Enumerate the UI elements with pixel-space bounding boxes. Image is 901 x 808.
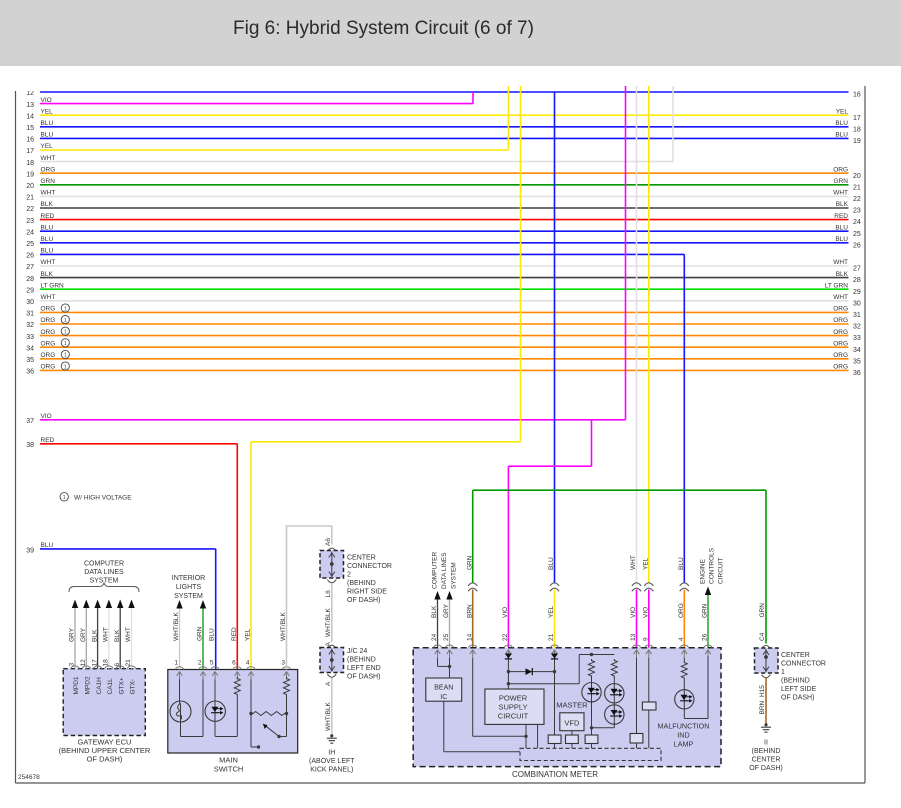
svg-text:30: 30	[853, 300, 861, 307]
svg-text:1: 1	[63, 495, 66, 501]
svg-text:CA1H: CA1H	[96, 677, 103, 695]
svg-text:SYSTEM: SYSTEM	[450, 562, 457, 589]
svg-text:20: 20	[26, 183, 34, 190]
svg-text:WHT: WHT	[41, 259, 56, 266]
svg-text:19: 19	[26, 171, 34, 178]
svg-text:MAIN: MAIN	[219, 756, 238, 765]
svg-text:GRY: GRY	[69, 627, 76, 642]
svg-text:ORG: ORG	[833, 329, 848, 336]
svg-text:GRY: GRY	[443, 603, 450, 618]
svg-text:12: 12	[80, 659, 87, 667]
svg-text:LT GRN: LT GRN	[41, 282, 65, 289]
svg-text:OF DASH): OF DASH)	[347, 674, 380, 681]
svg-text:22: 22	[502, 633, 509, 641]
svg-text:1: 1	[64, 318, 67, 324]
svg-text:(BEHIND: (BEHIND	[347, 580, 376, 587]
svg-text:36: 36	[853, 370, 861, 377]
svg-text:18: 18	[853, 126, 861, 133]
svg-text:(BEHIND: (BEHIND	[347, 657, 376, 664]
svg-text:CENTER: CENTER	[752, 757, 781, 764]
svg-text:BLU: BLU	[835, 120, 848, 127]
svg-text:3: 3	[281, 660, 285, 667]
svg-text:ORG: ORG	[833, 166, 848, 173]
svg-text:26: 26	[26, 253, 34, 260]
svg-text:DATA LINES: DATA LINES	[84, 569, 124, 576]
svg-text:1: 1	[174, 660, 178, 667]
svg-text:LIGHTS: LIGHTS	[176, 584, 202, 591]
svg-text:WHT/BLK: WHT/BLK	[173, 611, 180, 641]
svg-text:VIO: VIO	[643, 607, 650, 618]
svg-text:25: 25	[26, 241, 34, 248]
svg-text:ORG: ORG	[41, 340, 56, 347]
svg-text:POWER: POWER	[499, 694, 528, 703]
svg-text:BLK: BLK	[91, 629, 98, 642]
svg-text:W/ HIGH VOLTAGE: W/ HIGH VOLTAGE	[74, 494, 132, 501]
svg-text:1: 1	[781, 669, 785, 676]
svg-text:14: 14	[466, 633, 473, 641]
svg-text:WHT: WHT	[125, 627, 132, 642]
svg-text:254678: 254678	[18, 774, 40, 781]
svg-text:ORG: ORG	[41, 329, 56, 336]
svg-text:27: 27	[26, 264, 34, 271]
svg-text:35: 35	[26, 357, 34, 364]
svg-text:33: 33	[853, 335, 861, 342]
svg-text:OF DASH): OF DASH)	[781, 695, 814, 702]
svg-text:YEL: YEL	[41, 108, 54, 115]
svg-text:24: 24	[853, 219, 861, 226]
svg-text:VIO: VIO	[630, 607, 637, 618]
svg-text:13: 13	[630, 633, 637, 641]
svg-text:BLU: BLU	[835, 132, 848, 139]
svg-text:WHT: WHT	[103, 627, 110, 642]
svg-text:(ABOVE LEFT: (ABOVE LEFT	[309, 758, 355, 765]
svg-text:COMBINATION METER: COMBINATION METER	[512, 770, 598, 779]
svg-text:17: 17	[26, 148, 34, 155]
svg-text:VFD: VFD	[564, 718, 580, 727]
svg-text:BRN: BRN	[466, 604, 473, 618]
svg-text:YEL: YEL	[245, 628, 252, 641]
svg-text:A6: A6	[325, 538, 332, 546]
svg-text:LAMP: LAMP	[674, 739, 694, 748]
svg-text:33: 33	[26, 334, 34, 341]
svg-text:22: 22	[853, 196, 861, 203]
svg-text:WHT: WHT	[630, 555, 637, 570]
svg-text:4: 4	[246, 660, 250, 667]
svg-text:28: 28	[853, 277, 861, 284]
svg-text:36: 36	[26, 369, 34, 376]
svg-text:4: 4	[678, 637, 685, 641]
svg-text:ENGINE: ENGINE	[700, 558, 707, 584]
svg-text:9: 9	[643, 637, 650, 641]
svg-text:YEL: YEL	[643, 557, 650, 570]
svg-text:ORG: ORG	[41, 306, 56, 313]
svg-text:CONNECTOR: CONNECTOR	[781, 661, 826, 668]
svg-text:29: 29	[26, 287, 34, 294]
svg-text:1: 1	[64, 353, 67, 359]
svg-text:VIO: VIO	[41, 413, 52, 420]
svg-text:GRY: GRY	[80, 627, 87, 642]
svg-text:32: 32	[26, 322, 34, 329]
svg-text:CENTER: CENTER	[781, 652, 810, 659]
svg-text:GTX+: GTX+	[118, 677, 125, 694]
svg-text:RIGHT SIDE: RIGHT SIDE	[347, 589, 387, 596]
svg-text:ORG: ORG	[678, 603, 685, 618]
svg-text:28: 28	[26, 276, 34, 283]
svg-text:LEFT END: LEFT END	[347, 665, 381, 672]
svg-text:25: 25	[853, 231, 861, 238]
svg-text:C4: C4	[759, 632, 766, 641]
svg-text:5: 5	[210, 660, 214, 667]
svg-text:35: 35	[853, 358, 861, 365]
svg-text:INTERIOR: INTERIOR	[172, 575, 205, 582]
svg-text:23: 23	[26, 218, 34, 225]
svg-text:BLU: BLU	[678, 557, 685, 570]
svg-text:BLK: BLK	[114, 629, 121, 642]
svg-text:BLU: BLU	[209, 628, 216, 641]
svg-text:38: 38	[26, 442, 34, 449]
svg-text:BLK: BLK	[836, 201, 849, 208]
svg-text:COMPUTER: COMPUTER	[84, 561, 124, 568]
svg-text:ORG: ORG	[41, 352, 56, 359]
svg-text:IC: IC	[440, 694, 447, 701]
svg-text:34: 34	[853, 347, 861, 354]
svg-text:BLU: BLU	[41, 132, 54, 139]
svg-text:GTX-: GTX-	[130, 679, 137, 695]
svg-text:L6: L6	[325, 590, 332, 598]
svg-text:WHT/BLK: WHT/BLK	[325, 701, 332, 731]
svg-text:26: 26	[853, 242, 861, 249]
svg-text:27: 27	[853, 266, 861, 273]
svg-text:16: 16	[26, 137, 34, 144]
svg-text:YEL: YEL	[548, 605, 555, 618]
svg-text:(BEHIND: (BEHIND	[781, 678, 810, 685]
svg-text:COMPUTER: COMPUTER	[431, 552, 438, 590]
svg-text:1: 1	[64, 364, 67, 370]
svg-text:MPD2: MPD2	[85, 676, 92, 694]
svg-text:22: 22	[26, 206, 34, 213]
svg-text:39: 39	[26, 547, 34, 554]
svg-text:1: 1	[64, 341, 67, 347]
svg-text:BLU: BLU	[41, 120, 54, 127]
svg-text:ORG: ORG	[833, 352, 848, 359]
svg-text:30: 30	[26, 299, 34, 306]
svg-text:24: 24	[431, 633, 438, 641]
svg-text:IH: IH	[328, 750, 335, 757]
svg-text:CIRCUIT: CIRCUIT	[498, 712, 529, 721]
svg-text:21: 21	[26, 195, 34, 202]
svg-text:18: 18	[26, 160, 34, 167]
svg-text:GRN: GRN	[834, 178, 849, 185]
svg-text:RED: RED	[41, 437, 55, 444]
svg-text:BLU: BLU	[835, 236, 848, 243]
svg-text:RED: RED	[41, 213, 55, 220]
svg-text:24: 24	[26, 229, 34, 236]
svg-text:SYSTEM: SYSTEM	[174, 593, 203, 600]
svg-text:CIRCUIT: CIRCUIT	[718, 558, 725, 584]
svg-text:BEAN: BEAN	[434, 685, 453, 692]
svg-text:WHT: WHT	[833, 294, 848, 301]
svg-text:2: 2	[347, 572, 351, 579]
svg-text:II: II	[764, 740, 768, 747]
svg-text:6: 6	[232, 660, 236, 667]
svg-text:ORG: ORG	[833, 340, 848, 347]
svg-text:14: 14	[26, 113, 34, 120]
svg-text:BLU: BLU	[41, 542, 54, 549]
svg-text:OF DASH): OF DASH)	[87, 755, 123, 764]
svg-text:BLU: BLU	[41, 236, 54, 243]
svg-text:KICK PANEL): KICK PANEL)	[310, 767, 353, 774]
svg-text:OF DASH): OF DASH)	[347, 597, 380, 604]
svg-text:DATA LINES: DATA LINES	[441, 552, 448, 589]
svg-text:WHT/BLK: WHT/BLK	[325, 607, 332, 637]
svg-text:25: 25	[443, 633, 450, 641]
svg-text:BLU: BLU	[835, 224, 848, 231]
svg-text:RED: RED	[231, 627, 238, 641]
svg-text:31: 31	[26, 311, 34, 318]
svg-text:VIO: VIO	[41, 97, 52, 104]
svg-text:2: 2	[198, 660, 202, 667]
svg-text:BLK: BLK	[431, 605, 438, 618]
svg-text:CENTER: CENTER	[347, 555, 376, 562]
svg-text:23: 23	[853, 208, 861, 215]
svg-text:21: 21	[125, 659, 132, 667]
svg-text:SUPPLY: SUPPLY	[498, 703, 527, 712]
svg-text:BLK: BLK	[41, 201, 54, 208]
svg-text:J/C 24: J/C 24	[347, 648, 367, 655]
svg-text:CONNECTOR: CONNECTOR	[347, 563, 392, 570]
svg-text:BLU: BLU	[548, 557, 555, 570]
svg-text:WHT: WHT	[41, 155, 56, 162]
svg-text:17: 17	[853, 115, 861, 122]
svg-text:12: 12	[26, 90, 34, 97]
svg-text:15: 15	[26, 125, 34, 132]
svg-text:21: 21	[548, 633, 555, 641]
svg-text:WHT: WHT	[833, 259, 848, 266]
svg-text:1: 1	[64, 330, 67, 336]
svg-text:YEL: YEL	[41, 143, 54, 150]
svg-text:37: 37	[26, 418, 34, 425]
svg-text:1: 1	[64, 306, 67, 312]
svg-text:21: 21	[853, 184, 861, 191]
svg-text:MALFUNCTION: MALFUNCTION	[658, 722, 710, 731]
svg-text:BLK: BLK	[836, 271, 849, 278]
svg-text:WHT: WHT	[41, 294, 56, 301]
svg-text:ORG: ORG	[833, 317, 848, 324]
svg-text:WHT: WHT	[833, 190, 848, 197]
svg-text:LT GRN: LT GRN	[825, 282, 849, 289]
svg-text:MASTER: MASTER	[556, 700, 588, 709]
svg-text:MPD1: MPD1	[73, 676, 80, 694]
svg-text:GRN: GRN	[466, 555, 473, 570]
svg-text:32: 32	[853, 324, 861, 331]
svg-text:GRN: GRN	[759, 603, 766, 618]
svg-text:ORG: ORG	[833, 364, 848, 371]
svg-text:GRN: GRN	[197, 626, 204, 641]
svg-text:OF DASH): OF DASH)	[749, 765, 782, 772]
svg-text:BLK: BLK	[41, 271, 54, 278]
svg-text:BLU: BLU	[41, 248, 54, 255]
svg-text:CA1L: CA1L	[107, 678, 114, 695]
svg-text:ORG: ORG	[41, 166, 56, 173]
svg-text:RED: RED	[834, 213, 848, 220]
svg-text:18: 18	[103, 659, 110, 667]
svg-text:Fig 6: Hybrid System Circuit (: Fig 6: Hybrid System Circuit (6 of 7)	[233, 18, 534, 39]
svg-text:GRN: GRN	[41, 178, 56, 185]
svg-text:CONTROLS: CONTROLS	[709, 547, 716, 584]
svg-text:31: 31	[853, 312, 861, 319]
svg-text:BRN: BRN	[759, 700, 766, 714]
svg-text:IND: IND	[677, 731, 689, 740]
svg-text:(BEHIND: (BEHIND	[752, 748, 781, 755]
svg-text:BLU: BLU	[41, 224, 54, 231]
svg-text:A: A	[325, 681, 332, 686]
svg-text:19: 19	[853, 138, 861, 145]
svg-text:17: 17	[91, 659, 98, 667]
svg-text:ORG: ORG	[833, 306, 848, 313]
svg-text:WHT: WHT	[41, 190, 56, 197]
svg-text:ORG: ORG	[41, 364, 56, 371]
svg-text:34: 34	[26, 345, 34, 352]
svg-text:SWITCH: SWITCH	[214, 765, 244, 774]
svg-text:YEL: YEL	[836, 108, 849, 115]
svg-text:LEFT SIDE: LEFT SIDE	[781, 686, 817, 693]
svg-text:ORG: ORG	[41, 317, 56, 324]
svg-text:29: 29	[853, 289, 861, 296]
svg-text:16: 16	[853, 92, 861, 99]
svg-text:20: 20	[853, 173, 861, 180]
svg-text:VIO: VIO	[502, 607, 509, 618]
svg-text:H15: H15	[759, 685, 766, 697]
svg-text:13: 13	[26, 102, 34, 109]
